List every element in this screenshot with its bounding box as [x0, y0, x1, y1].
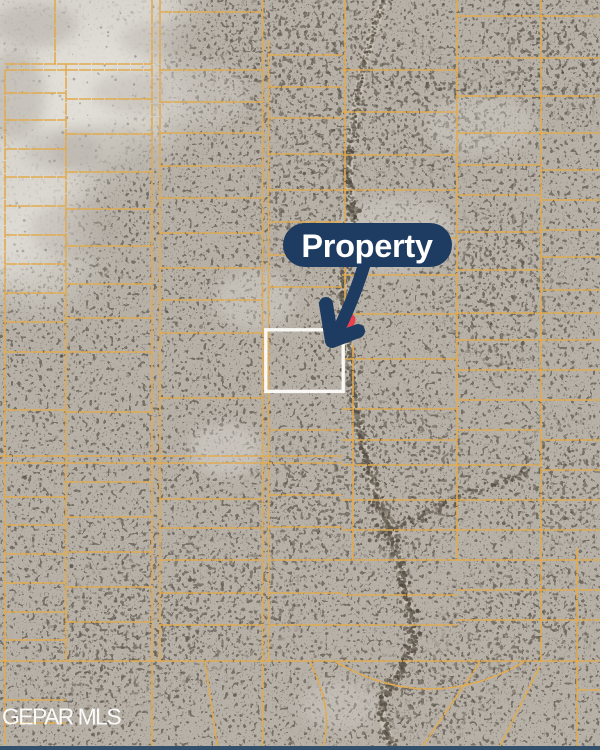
svg-text:Property: Property — [301, 228, 432, 264]
svg-text:GEPAR MLS: GEPAR MLS — [2, 704, 121, 730]
